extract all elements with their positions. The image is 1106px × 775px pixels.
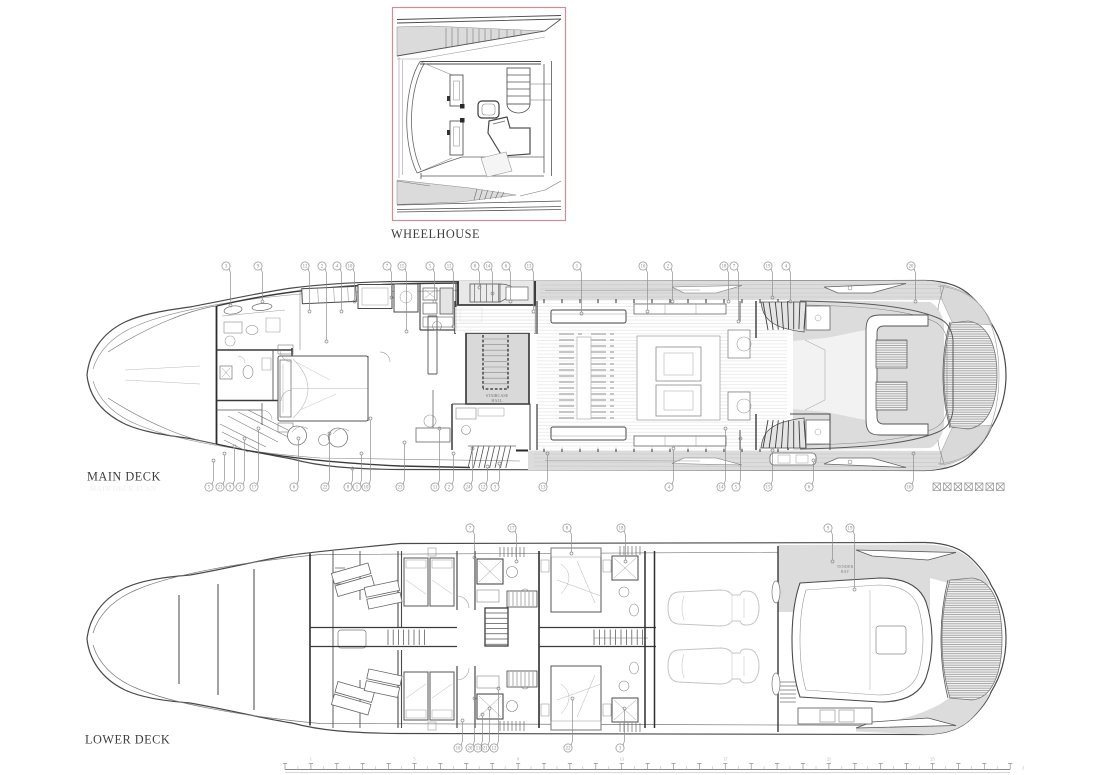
svg-text:15: 15 bbox=[766, 486, 771, 491]
svg-text:8: 8 bbox=[566, 527, 569, 532]
svg-text:18: 18 bbox=[722, 265, 727, 270]
svg-text:4: 4 bbox=[336, 265, 339, 270]
svg-text:3: 3 bbox=[239, 486, 242, 491]
svg-text:11: 11 bbox=[447, 265, 452, 270]
svg-text:10: 10 bbox=[456, 747, 461, 752]
svg-text:LOWER DECK: LOWER DECK bbox=[85, 733, 170, 747]
svg-text:5: 5 bbox=[413, 757, 416, 762]
svg-text:2: 2 bbox=[667, 265, 670, 270]
svg-text:2: 2 bbox=[448, 486, 451, 491]
svg-text:6: 6 bbox=[505, 265, 508, 270]
svg-text:5: 5 bbox=[429, 265, 432, 270]
svg-text:1: 1 bbox=[356, 486, 359, 491]
svg-text:12: 12 bbox=[492, 747, 497, 752]
svg-text:17: 17 bbox=[510, 527, 515, 532]
svg-text:20: 20 bbox=[468, 747, 473, 752]
svg-text:14: 14 bbox=[719, 486, 724, 491]
svg-text:21: 21 bbox=[218, 486, 223, 491]
svg-text:9: 9 bbox=[257, 265, 260, 270]
svg-text:8: 8 bbox=[347, 486, 350, 491]
svg-text:14: 14 bbox=[486, 265, 491, 270]
svg-text:21: 21 bbox=[827, 757, 831, 762]
svg-text:6: 6 bbox=[293, 486, 296, 491]
svg-text:4: 4 bbox=[668, 486, 671, 491]
svg-text:7: 7 bbox=[469, 527, 472, 532]
svg-text:13: 13 bbox=[541, 486, 546, 491]
svg-text:20: 20 bbox=[909, 265, 914, 270]
svg-text:23: 23 bbox=[398, 486, 403, 491]
svg-text:17: 17 bbox=[723, 757, 728, 762]
svg-text:4: 4 bbox=[785, 265, 788, 270]
svg-text:3: 3 bbox=[494, 486, 497, 491]
svg-text:2: 2 bbox=[321, 265, 324, 270]
svg-text:24: 24 bbox=[466, 486, 471, 491]
svg-text:7: 7 bbox=[386, 265, 389, 270]
svg-text:18: 18 bbox=[619, 527, 624, 532]
svg-text:12: 12 bbox=[481, 486, 486, 491]
svg-text:11: 11 bbox=[433, 486, 438, 491]
svg-text:9: 9 bbox=[229, 486, 232, 491]
svg-text:BAY: BAY bbox=[841, 569, 849, 574]
svg-text:16: 16 bbox=[907, 486, 912, 491]
svg-text:5: 5 bbox=[735, 486, 738, 491]
svg-text:22: 22 bbox=[566, 747, 571, 752]
svg-text:25: 25 bbox=[930, 757, 935, 762]
svg-text:19: 19 bbox=[766, 265, 771, 270]
svg-text:12: 12 bbox=[303, 265, 308, 270]
svg-text:19: 19 bbox=[848, 527, 853, 532]
svg-text:MAIN DECK: MAIN DECK bbox=[87, 470, 161, 484]
svg-text:13: 13 bbox=[527, 265, 532, 270]
svg-text:3: 3 bbox=[619, 747, 622, 752]
svg-text:3: 3 bbox=[225, 265, 228, 270]
svg-text:6: 6 bbox=[808, 486, 811, 491]
svg-text:13: 13 bbox=[620, 757, 625, 762]
svg-text:21: 21 bbox=[483, 747, 488, 752]
svg-text:HALL: HALL bbox=[491, 398, 503, 403]
svg-text:7: 7 bbox=[733, 265, 736, 270]
svg-text:1: 1 bbox=[576, 265, 579, 270]
svg-text:15: 15 bbox=[400, 265, 405, 270]
svg-text:9: 9 bbox=[517, 757, 520, 762]
svg-text:11: 11 bbox=[476, 747, 481, 752]
svg-text:16: 16 bbox=[641, 265, 646, 270]
svg-text:WHEELHOUSE: WHEELHOUSE bbox=[391, 227, 480, 241]
svg-text:1: 1 bbox=[310, 757, 312, 762]
svg-text:10: 10 bbox=[364, 486, 369, 491]
svg-text:10: 10 bbox=[348, 265, 353, 270]
svg-text:8: 8 bbox=[474, 265, 477, 270]
svg-text:22: 22 bbox=[323, 486, 328, 491]
svg-text:9: 9 bbox=[827, 527, 830, 532]
svg-text:17: 17 bbox=[252, 486, 257, 491]
svg-text:MAIN DECK PLAN: MAIN DECK PLAN bbox=[90, 485, 157, 493]
svg-text:5: 5 bbox=[208, 486, 211, 491]
